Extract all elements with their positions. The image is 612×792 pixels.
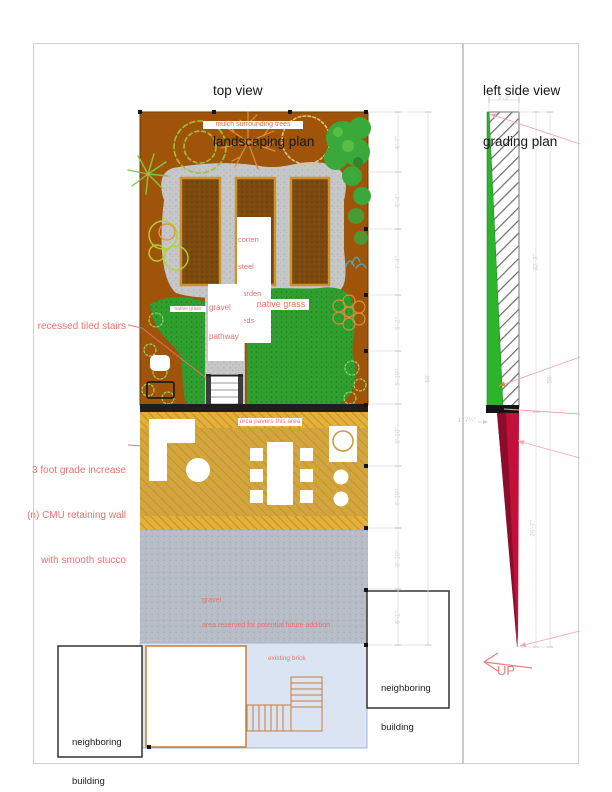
existing-building bbox=[146, 646, 246, 747]
selection-handle[interactable] bbox=[147, 745, 151, 749]
landscaping-plan-sheet: top view landscaping plan left side view… bbox=[0, 0, 612, 792]
existing-brick-label: existing brick bbox=[268, 655, 306, 663]
future-area-line: area reserved for potential future addit… bbox=[202, 622, 330, 630]
dim-plan-total: 59' bbox=[424, 357, 433, 401]
retaining-wall bbox=[140, 404, 368, 412]
grading-section bbox=[486, 112, 519, 647]
dim-side-top-width: 3'-3" bbox=[482, 94, 526, 103]
selection-handle[interactable] bbox=[364, 110, 368, 114]
corten-label-line: steel bbox=[238, 262, 270, 271]
dim-side-upper: 32'-3" bbox=[532, 241, 541, 285]
neighboring-line: neighboring bbox=[72, 736, 122, 749]
future-area-line: gravel bbox=[202, 597, 330, 605]
corten-label-line: corten bbox=[238, 235, 270, 244]
mulch-label: mulch surrounding trees bbox=[203, 121, 303, 129]
coffee-table bbox=[186, 458, 210, 482]
grade-callout-line3: with smooth stucco bbox=[18, 553, 126, 568]
dim-side-lower: 26'-7" bbox=[529, 507, 538, 551]
neighboring-building-left-label: neighboring building bbox=[72, 710, 122, 792]
bench bbox=[150, 355, 170, 371]
gravel-pathway-line: pathway bbox=[209, 332, 243, 342]
dim-segment-5: 5'-10" bbox=[394, 356, 403, 400]
neighboring-line: building bbox=[381, 721, 431, 734]
stool bbox=[334, 492, 349, 507]
dim-segment-2: 6'-4" bbox=[394, 179, 403, 223]
selection-handle[interactable] bbox=[364, 588, 368, 592]
selection-handle[interactable] bbox=[138, 110, 142, 114]
selection-handle[interactable] bbox=[364, 349, 368, 353]
stool bbox=[334, 470, 349, 485]
dim-segment-9: 6'-1" bbox=[394, 596, 403, 640]
grade-callout-line2: (n) CMU retaining wall bbox=[18, 508, 126, 523]
dim-segment-3: 7'-4" bbox=[394, 241, 403, 285]
grade-callout-line1: 3 foot grade increase bbox=[18, 463, 126, 478]
selection-handle[interactable] bbox=[364, 293, 368, 297]
dim-segment-7: 6'-10" bbox=[394, 476, 403, 520]
dining-table bbox=[267, 442, 293, 505]
plan-title-line2: landscaping plan bbox=[213, 133, 314, 150]
dim-side-total: 59' bbox=[546, 358, 555, 402]
neighboring-building-right-label: neighboring building bbox=[381, 656, 431, 760]
dim-segment-8: 6'-10" bbox=[394, 537, 403, 581]
selection-handle[interactable] bbox=[364, 464, 368, 468]
wall-footing bbox=[486, 405, 519, 413]
selection-handle[interactable] bbox=[364, 403, 368, 407]
gravel-pathway-label: gravel pathway bbox=[208, 284, 244, 361]
native-grass-label: native grass bbox=[253, 299, 309, 310]
grade-callout: 3 foot grade increase (n) CMU retaining … bbox=[18, 433, 126, 598]
plan-title-line1: top view bbox=[213, 82, 314, 99]
neighboring-line: building bbox=[72, 775, 122, 788]
grading-title: left side view grading plan bbox=[483, 48, 560, 184]
neighboring-line: neighboring bbox=[381, 682, 431, 695]
dim-segment-1: 6'-7" bbox=[394, 121, 403, 165]
future-area-label: gravel area reserved for potential futur… bbox=[202, 580, 330, 647]
native-grass-small-label: native grass bbox=[170, 306, 206, 312]
dim-side-wall-width: 1'-7½" bbox=[440, 416, 476, 425]
dim-segment-4: 6'-2" bbox=[394, 302, 403, 346]
selection-handle[interactable] bbox=[364, 643, 368, 647]
gravel-pathway-line: gravel bbox=[209, 303, 243, 313]
up-label: UP bbox=[497, 663, 515, 679]
grading-title-line2: grading plan bbox=[483, 133, 560, 150]
selection-handle[interactable] bbox=[364, 526, 368, 530]
selection-handle[interactable] bbox=[364, 227, 368, 231]
stairs-callout: recessed tiled stairs bbox=[34, 319, 126, 334]
dim-segment-6: 6'-10" bbox=[394, 414, 403, 458]
pavers-label: orca pavers this area bbox=[238, 418, 302, 426]
plan-title: top view landscaping plan bbox=[213, 48, 314, 184]
